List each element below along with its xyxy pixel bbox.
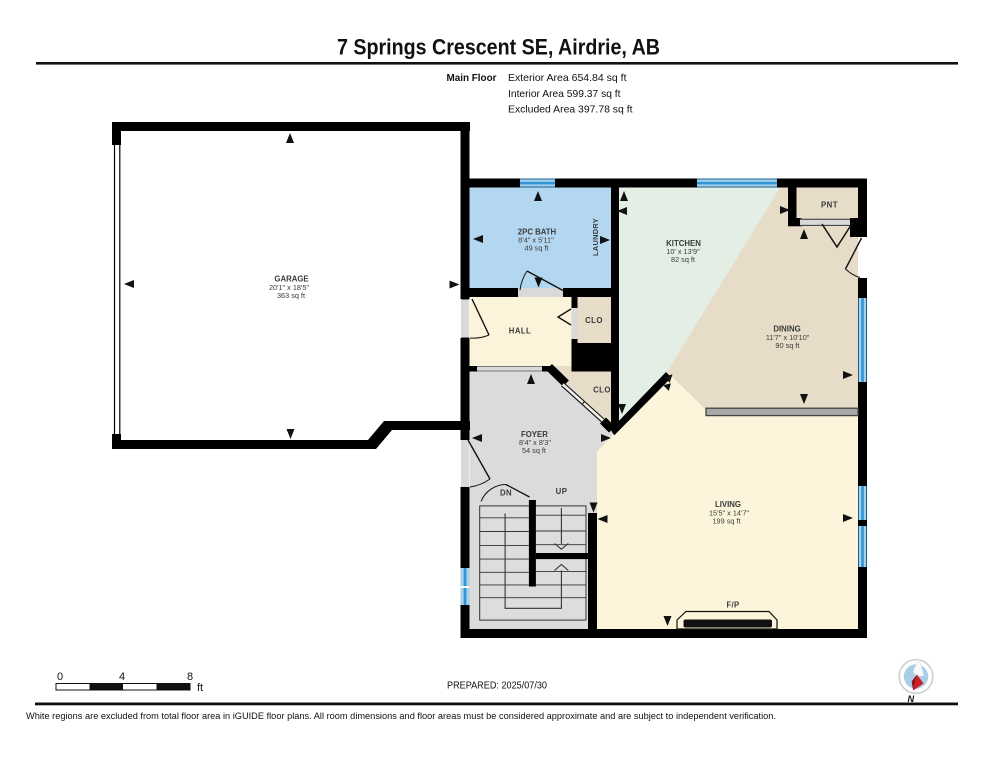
svg-text:ft: ft (197, 682, 203, 694)
svg-text:HALL: HALL (509, 327, 531, 336)
svg-text:Main Floor: Main Floor (447, 72, 497, 84)
svg-text:0: 0 (57, 671, 63, 683)
svg-text:CLO: CLO (593, 386, 611, 395)
svg-text:4: 4 (119, 671, 125, 683)
svg-text:90 sq ft: 90 sq ft (775, 341, 799, 350)
svg-text:Exterior Area 654.84 sq ft: Exterior Area 654.84 sq ft (508, 72, 627, 84)
svg-text:82 sq ft: 82 sq ft (671, 255, 695, 264)
svg-text:White regions are excluded fro: White regions are excluded from total fl… (26, 711, 776, 722)
svg-text:8: 8 (187, 671, 193, 683)
svg-text:PREPARED: 2025/07/30: PREPARED: 2025/07/30 (447, 681, 547, 692)
svg-text:363 sq ft: 363 sq ft (277, 291, 305, 300)
svg-text:199 sq ft: 199 sq ft (713, 516, 741, 525)
svg-text:N: N (908, 694, 915, 704)
svg-text:F/P: F/P (726, 600, 739, 609)
svg-text:49 sq ft: 49 sq ft (525, 244, 549, 253)
svg-text:LAUNDRY: LAUNDRY (591, 218, 600, 256)
svg-text:DN: DN (500, 489, 512, 498)
svg-text:7 Springs Crescent SE, Airdrie: 7 Springs Crescent SE, Airdrie, AB (337, 35, 660, 60)
svg-text:CLO: CLO (585, 316, 603, 325)
svg-text:Excluded Area 397.78 sq ft: Excluded Area 397.78 sq ft (508, 104, 633, 116)
svg-text:Interior Area 599.37 sq ft: Interior Area 599.37 sq ft (508, 88, 621, 100)
svg-text:54 sq ft: 54 sq ft (522, 446, 546, 455)
svg-text:PNT: PNT (821, 201, 838, 210)
svg-text:UP: UP (556, 487, 568, 496)
